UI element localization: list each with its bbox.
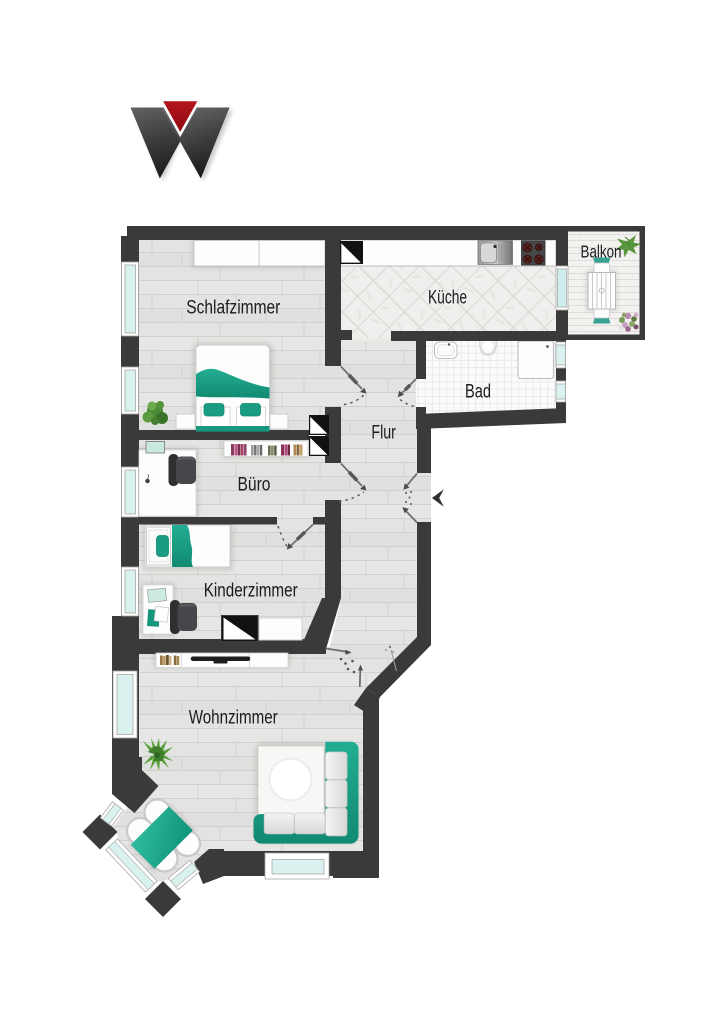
svg-text:Büro: Büro [238, 475, 271, 496]
svg-text:Kinderzimmer: Kinderzimmer [204, 581, 299, 602]
svg-text:Schlafzimmer: Schlafzimmer [186, 298, 281, 319]
svg-text:Bad: Bad [465, 382, 491, 403]
svg-text:Balkon: Balkon [581, 242, 622, 262]
svg-text:Wohnzimmer: Wohnzimmer [189, 708, 279, 729]
svg-text:Küche: Küche [428, 288, 467, 309]
svg-text:Flur: Flur [371, 423, 396, 444]
